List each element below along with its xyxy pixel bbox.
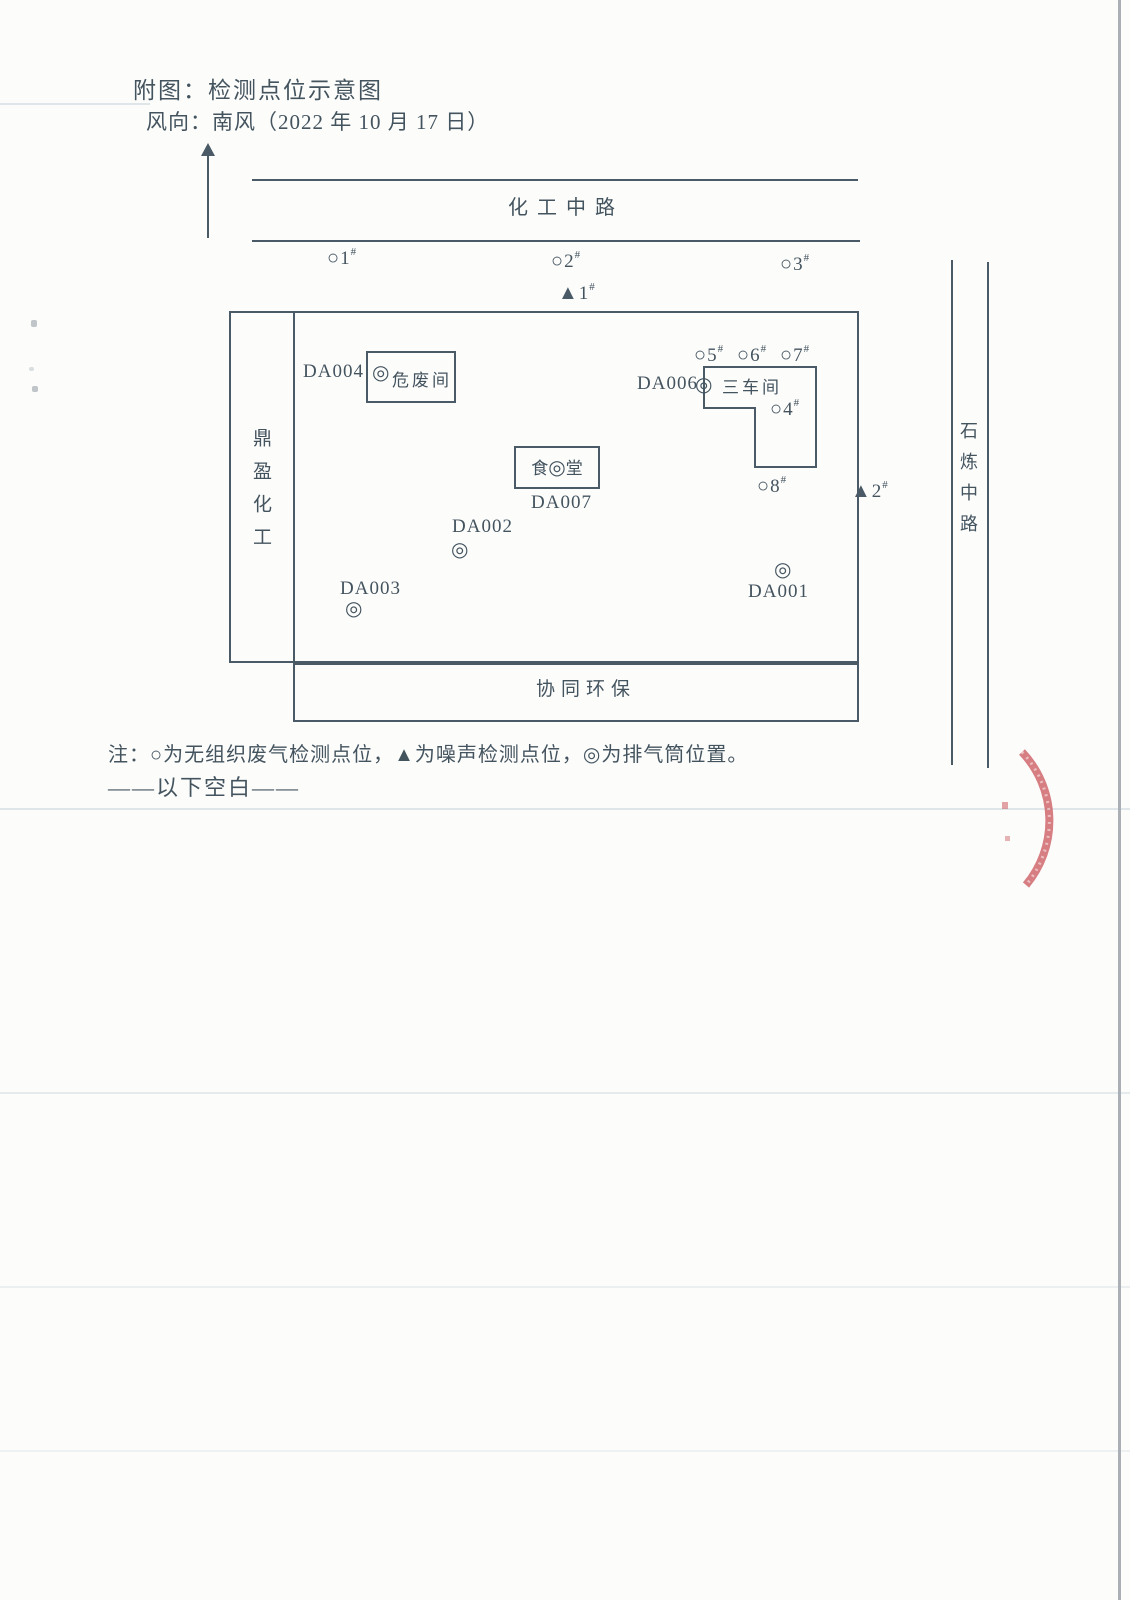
triangle-icon: ▲	[558, 283, 578, 303]
gas-point-1: ○1#	[327, 248, 355, 268]
circle-icon: ○	[770, 399, 782, 419]
wind-arrow-shaft	[207, 155, 209, 238]
circle-icon: ○	[737, 345, 749, 365]
road-top-upper-line	[252, 179, 858, 181]
road-right-label: 石炼中路	[959, 421, 977, 545]
scanned-page: 附图：检测点位示意图 风向：南风（2022 年 10 月 17 日） 化工中路 …	[0, 0, 1130, 1600]
wind-direction-label: 风向：南风（2022 年 10 月 17 日）	[146, 110, 489, 134]
gas-point-3: ○3#	[780, 254, 808, 274]
bottom-company-label: 协同环保	[536, 679, 636, 701]
road-right-right-line	[987, 262, 989, 768]
scan-edge-line	[1118, 0, 1121, 1600]
stack-icon-DA002: ◎	[451, 540, 468, 560]
noise-point-2: ▲2#	[851, 481, 887, 501]
canteen-label: 食◎堂	[531, 458, 582, 478]
scan-artifact-line	[0, 103, 150, 105]
gas-point-7: ○7#	[780, 345, 808, 365]
road-top-label: 化工中路	[508, 197, 624, 220]
circle-icon: ○	[327, 248, 339, 268]
gas-point-4: ○4#	[770, 399, 798, 419]
left-company-label: 鼎盈化工	[251, 428, 270, 560]
triangle-icon: ▲	[851, 481, 871, 501]
stack-icon-DA003: ◎	[345, 599, 362, 619]
stack-label-DA001: DA001	[748, 582, 809, 601]
scan-artifact-line	[0, 1286, 1130, 1288]
stack-label-DA003: DA003	[340, 579, 401, 598]
circle-icon: ○	[694, 345, 706, 365]
left-strip-divider	[293, 311, 295, 722]
scan-speck	[31, 320, 37, 327]
stack-icon-DA004: ◎	[372, 363, 389, 383]
stack-icon-DA007: ◎	[548, 457, 565, 479]
canteen-building: 食◎堂	[514, 446, 600, 489]
stack-icon-DA001: ◎	[774, 560, 791, 580]
scan-speck	[29, 367, 34, 371]
stack-label-DA007: DA007	[531, 493, 592, 512]
gas-point-8: ○8#	[757, 476, 785, 496]
scan-artifact-line	[0, 808, 1130, 810]
circle-icon: ○	[780, 345, 792, 365]
scan-speck	[32, 386, 38, 392]
end-of-content-marker: ——以下空白——	[108, 775, 300, 800]
workshop-label: 三车间	[722, 379, 782, 396]
gas-point-5: ○5#	[694, 345, 722, 365]
gas-point-6: ○6#	[737, 345, 765, 365]
scan-artifact-line	[0, 1092, 1130, 1094]
scan-artifact-line	[0, 1450, 1130, 1452]
red-stamp	[985, 730, 1115, 905]
stack-label-DA002: DA002	[452, 517, 513, 536]
gas-point-2: ○2#	[551, 251, 579, 271]
legend-note: 注：○为无组织废气检测点位，▲为噪声检测点位，◎为排气筒位置。	[108, 744, 748, 767]
circle-icon: ○	[551, 251, 563, 271]
stack-label-DA004: DA004	[303, 362, 364, 381]
circle-icon: ○	[757, 476, 769, 496]
hazwaste-label: 危废间	[392, 372, 452, 389]
stack-label-DA006: DA006	[637, 374, 698, 393]
circle-icon: ○	[780, 254, 792, 274]
road-top-lower-line	[252, 240, 860, 242]
road-right-left-line	[951, 260, 953, 765]
noise-point-1: ▲1#	[558, 283, 594, 303]
page-title: 附图：检测点位示意图	[133, 78, 383, 104]
